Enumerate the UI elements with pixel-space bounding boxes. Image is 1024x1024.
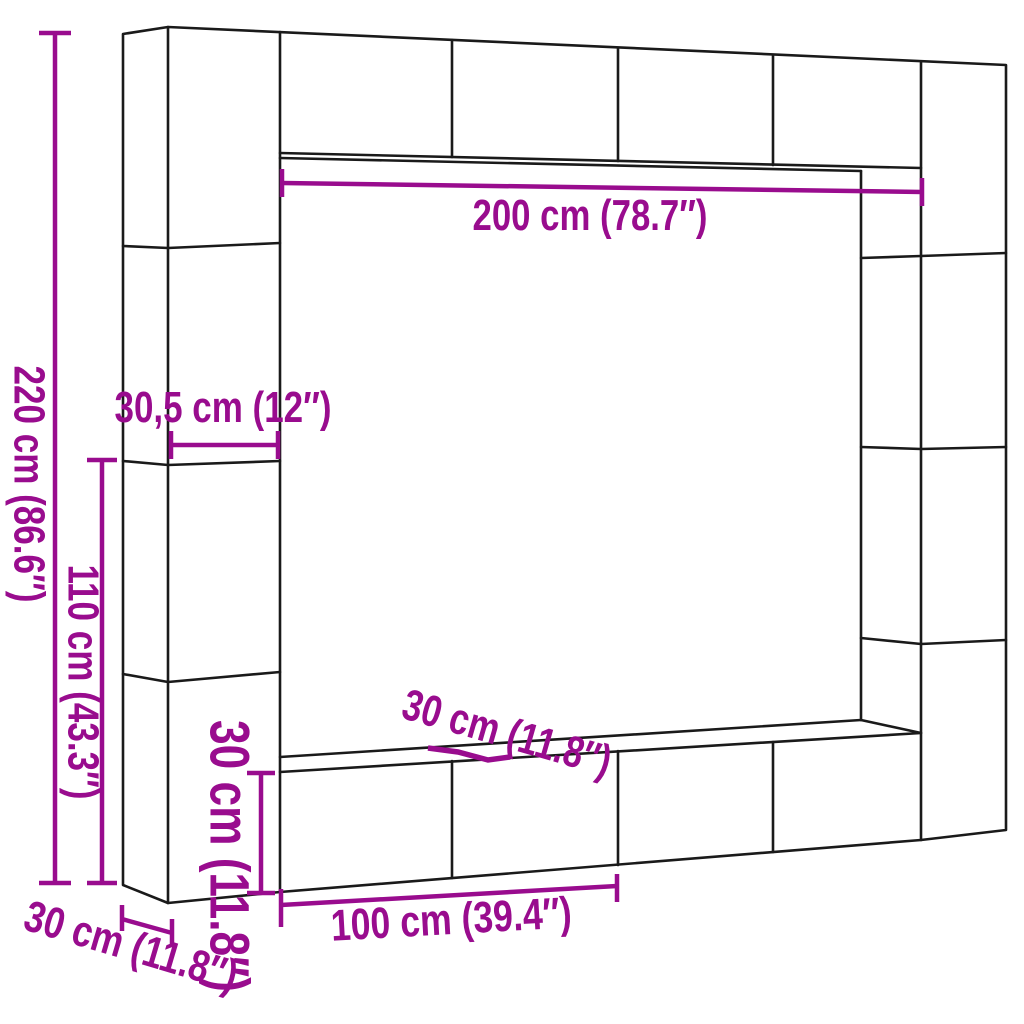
dimension-label-lower-height: 110 cm (43.3″) <box>59 565 108 800</box>
dimension-label-column-width: 30,5 cm (12″) <box>115 383 332 432</box>
dimension-label-total-height: 220 cm (86.6″) <box>5 366 54 603</box>
dimension-label-bottom-cabinet-width: 100 cm (39.4″) <box>330 888 573 950</box>
furniture-dimension-diagram: 220 cm (86.6″) 110 cm (43.3″) 30,5 cm (1… <box>0 0 1024 1024</box>
dimension-lower-height: 110 cm (43.3″) <box>59 460 117 883</box>
dimension-label-inner-width: 200 cm (78.7″) <box>473 191 708 240</box>
diagram-canvas: 220 cm (86.6″) 110 cm (43.3″) 30,5 cm (1… <box>0 0 1024 1024</box>
